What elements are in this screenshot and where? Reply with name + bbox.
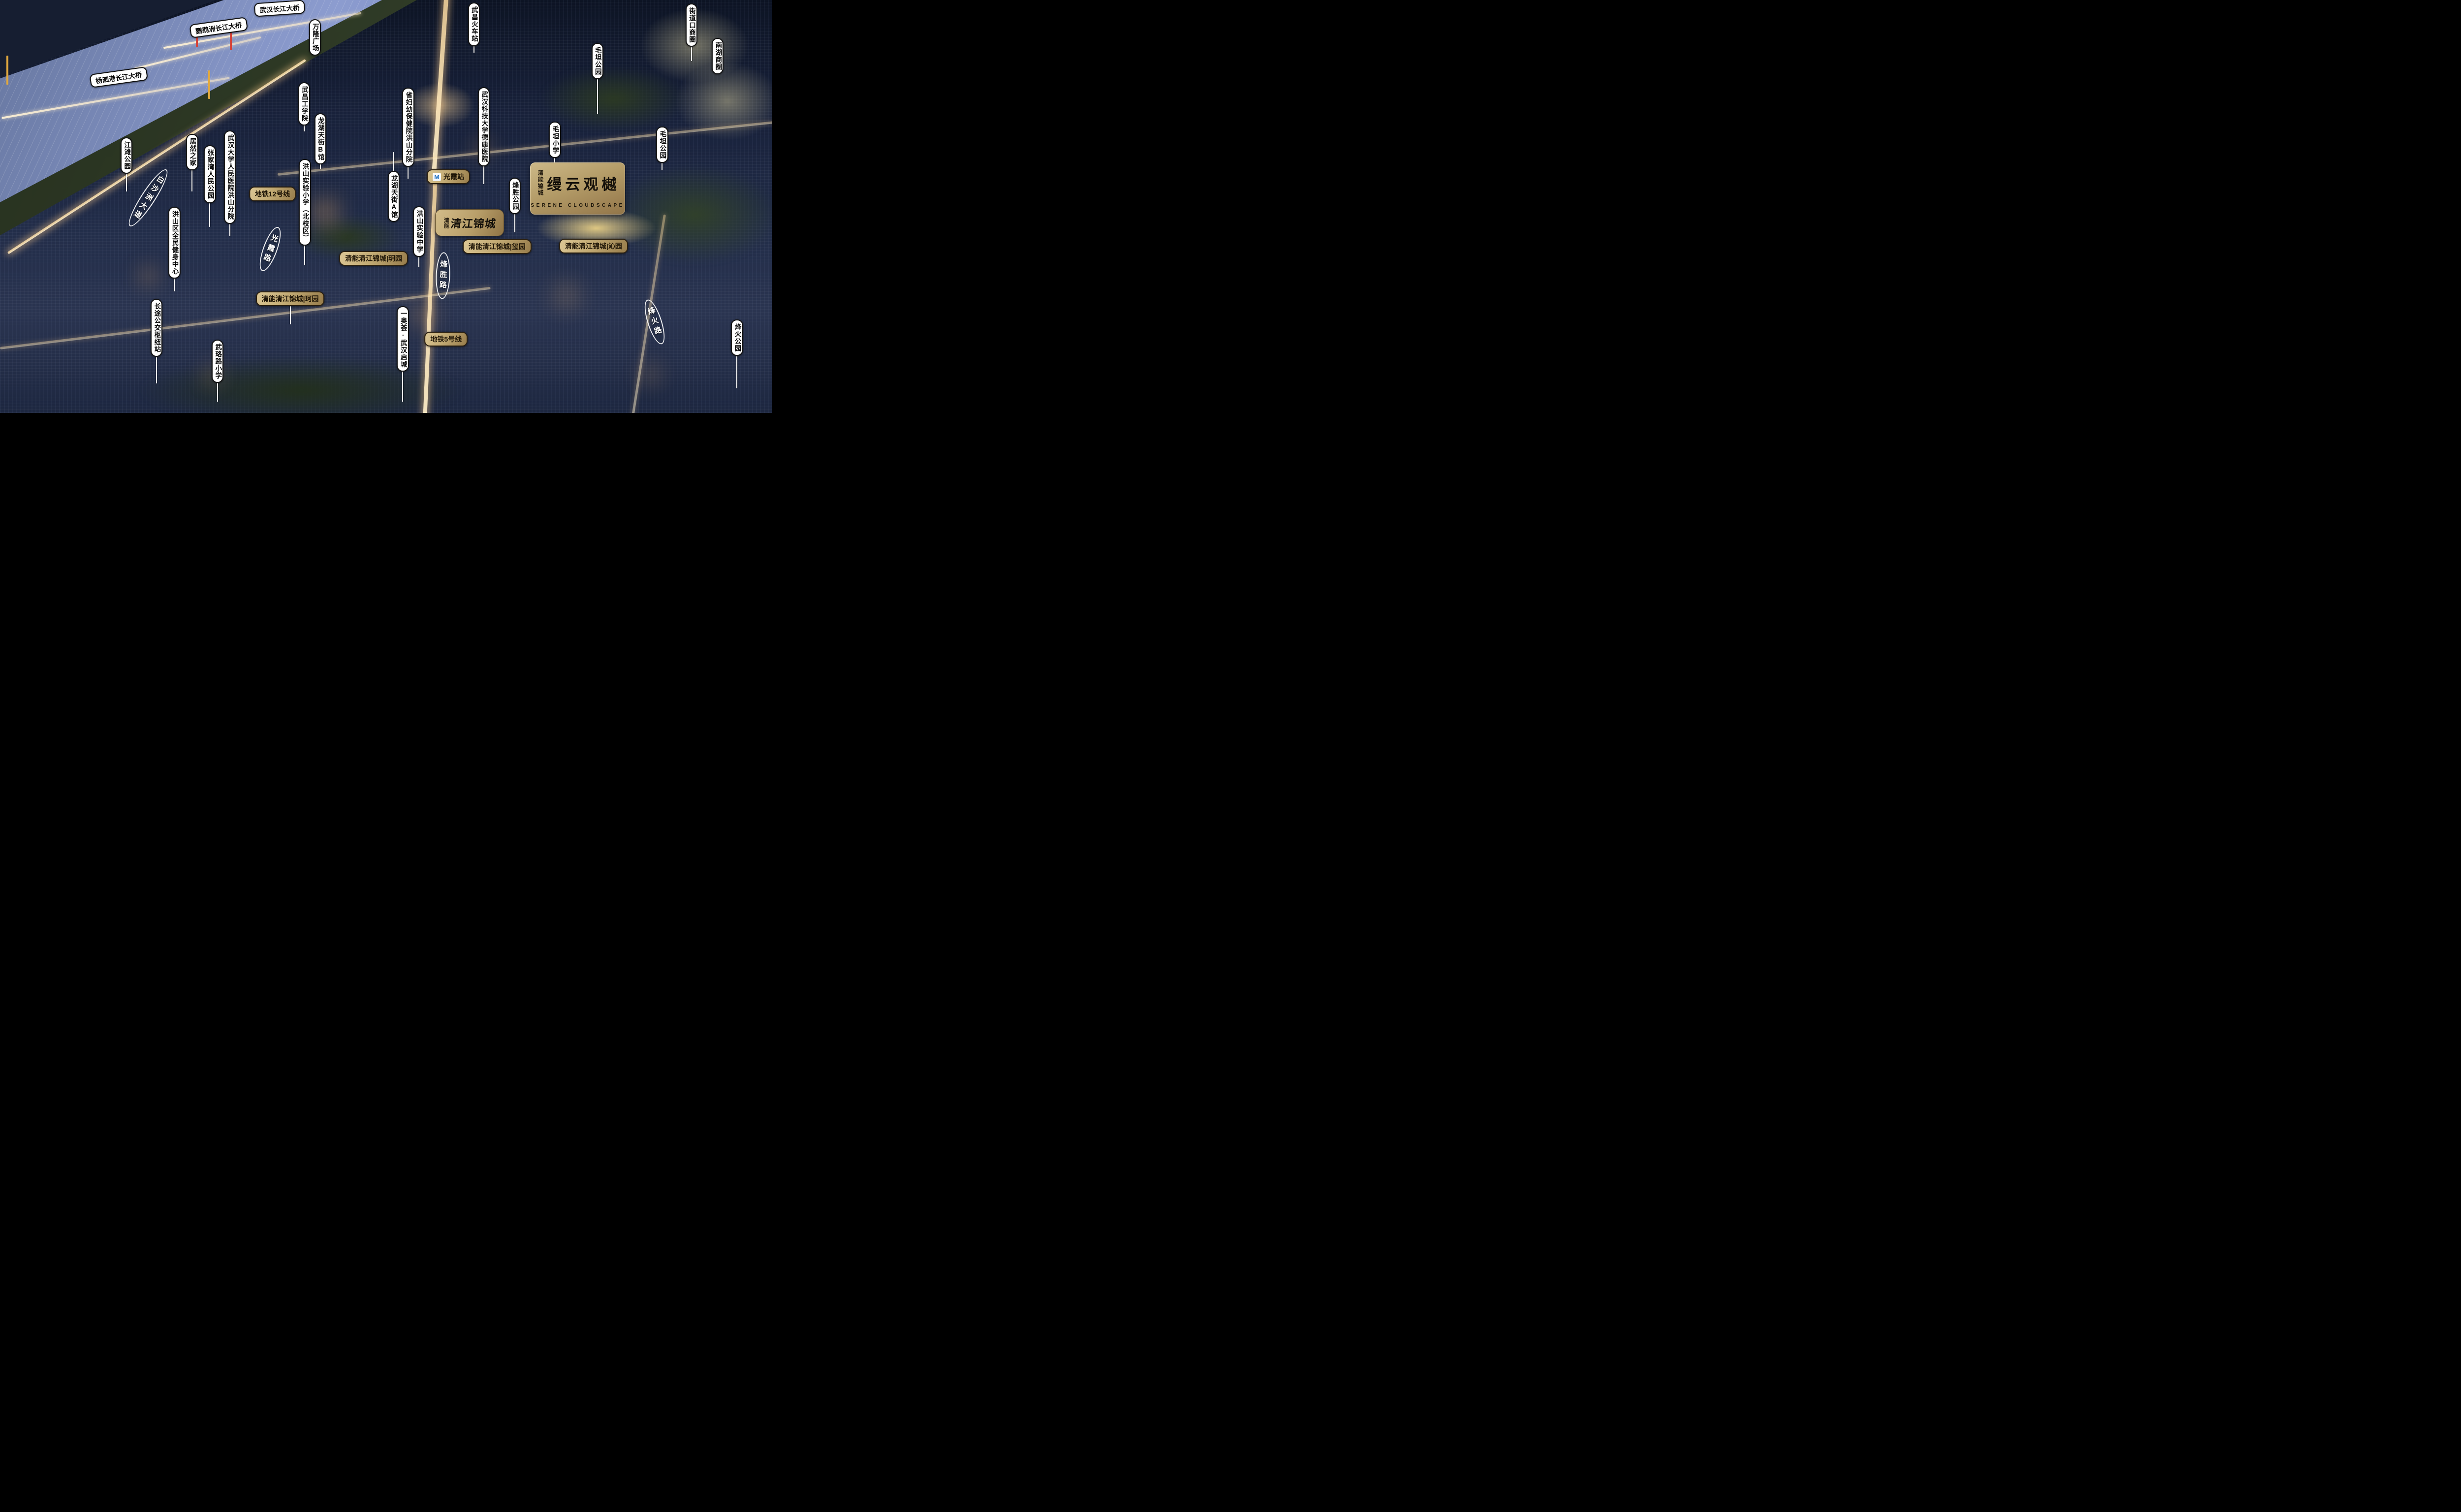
yangtze-river xyxy=(0,0,772,413)
wuluo-road-primary-school: 武珞路小学 xyxy=(212,340,223,383)
hongshan-fitness-center-leader-line xyxy=(174,278,175,292)
wuhan-university-peoples-hospital-hongshan-leader-line xyxy=(229,223,230,236)
yingwuzhou-red-pylon-2 xyxy=(230,31,232,50)
developer-seal: 清能锦城 xyxy=(537,170,543,202)
project-subtitle-en: SERENE CLOUDSCAPE xyxy=(531,203,624,208)
jiangtan-park: 江滩公园 xyxy=(121,137,132,174)
wuhan-university-peoples-hospital-hongshan: 武汉大学人民医院洪山分院 xyxy=(224,130,236,224)
jiedaokou-business-circle-leader-line xyxy=(691,46,692,61)
hongshan-experimental-middle-school: 洪山实验中学 xyxy=(413,206,425,257)
wust-dekang-hospital: 武汉科技大学德康医院 xyxy=(478,87,490,166)
qingjiang-jincheng-qin-garden: 清能清江锦城|沁园 xyxy=(559,239,628,253)
juran-home: 居然之家 xyxy=(186,134,198,170)
nanhu-business-circle: 南湖商圈 xyxy=(712,38,724,74)
city-texture xyxy=(0,0,772,413)
zhangjiawan-peoples-park-leader-line xyxy=(209,202,210,227)
main-road-north xyxy=(431,0,449,182)
wuluo-road-primary-school-leader-line xyxy=(217,382,218,402)
qingjiang-jincheng-xi-garden: 清能清江锦城|玺园 xyxy=(463,239,532,254)
yangsigang-gold-pylon-2 xyxy=(6,56,8,85)
qingjiang-jincheng-ke-garden-leader-line xyxy=(290,306,291,324)
hongshan-experimental-middle-school-leader-line xyxy=(418,255,419,267)
maotan-park-north-leader-line xyxy=(597,78,598,113)
yingwuzhou-bridge-deck xyxy=(133,36,261,70)
fengsheng-park-leader-line xyxy=(514,213,515,232)
wuchang-railway-station-leader-line xyxy=(473,45,474,53)
fenghuo-park: 烽火公园 xyxy=(731,319,743,356)
wuhan-changjiang-bridge: 武汉长江大桥 xyxy=(253,0,305,17)
brand-name-calligraphy: 清江锦城 xyxy=(450,215,497,231)
hongshan-experimental-primary-north-leader-line xyxy=(304,245,305,266)
metro-m-icon: M xyxy=(433,173,441,181)
qingjiang-jincheng-yue-garden: 清能清江锦城|玥园 xyxy=(339,251,408,266)
provincial-maternity-hospital-hongshan: 省妇幼保健院洪山分院 xyxy=(402,88,414,167)
brand-ribbon-qingjiang-jincheng: 清能 清江锦城 xyxy=(435,209,504,236)
south-road xyxy=(0,286,490,349)
wuchang-railway-station: 武昌火车站 xyxy=(468,2,480,46)
far-bank-city xyxy=(0,0,772,413)
wanlong-plaza: 万隆广场 xyxy=(309,19,321,56)
long-distance-bus-hub-leader-line xyxy=(156,356,157,383)
wuchang-institute-of-technology: 武昌工学院 xyxy=(298,82,310,126)
guangxia-road: 光霞路 xyxy=(255,224,285,273)
metro-line-12: 地铁12号线 xyxy=(249,187,296,201)
long-distance-bus-hub: 长途公交枢纽站 xyxy=(151,299,162,357)
maotan-park-east: 毛坦公园 xyxy=(656,126,668,163)
longhu-paradise-walk-a-leader-line xyxy=(393,152,394,171)
project-title: 缦云观樾 xyxy=(547,172,620,194)
city-warm-lights xyxy=(0,0,1,1)
river-reflections xyxy=(0,0,772,413)
location-map: 武汉长江大桥鹦鹉洲长江大桥杨泗港长江大桥万隆广场武昌火车站街道口商圈南湖商圈毛坦… xyxy=(0,0,772,413)
maotan-park-east-leader-line xyxy=(662,162,663,171)
east-landscape-park xyxy=(610,165,772,264)
river-shore-green xyxy=(0,0,772,413)
baishazhou-avenue-road xyxy=(7,59,306,254)
longhu-paradise-walk-b: 龙湖天街B馆 xyxy=(315,113,326,165)
jiangtan-park-leader-line xyxy=(126,173,127,192)
interchange-glow xyxy=(405,83,474,128)
nanhu-glow-ellipse xyxy=(675,62,772,140)
wust-dekang-hospital-leader-line xyxy=(483,165,484,184)
jiedaokou-business-circle: 街道口商圈 xyxy=(686,3,697,47)
aohui-wuhan-qicheng-leader-line xyxy=(402,370,403,402)
zhangjiawan-peoples-park: 张家湾人民公园 xyxy=(204,145,216,203)
maotan-park-north: 毛坦公园 xyxy=(592,43,603,79)
fenghuo-park-leader-line xyxy=(736,355,737,388)
main-road-south xyxy=(423,173,438,413)
fengsheng-road: 烽胜路 xyxy=(435,252,451,299)
project-logo-box: 清能锦城 缦云观樾 SERENE CLOUDSCAPE xyxy=(530,162,625,215)
maotan-primary-school: 毛坦小学 xyxy=(549,122,561,158)
longhu-paradise-walk-a: 龙湖天街A馆 xyxy=(388,171,400,222)
brand-prefix: 清能 xyxy=(443,218,448,228)
yingwuzhou-changjiang-bridge: 鹦鹉洲长江大桥 xyxy=(189,17,248,38)
metro-line-5: 地铁5号线 xyxy=(424,332,468,346)
east-west-road xyxy=(278,120,772,176)
juran-home-leader-line xyxy=(191,169,192,191)
provincial-maternity-hospital-hongshan-leader-line xyxy=(408,166,409,179)
qingjiang-jincheng-ke-garden: 清能清江锦城|珂园 xyxy=(256,291,325,306)
south-green-belt xyxy=(139,355,463,413)
guangxia-metro-station: M光霞站 xyxy=(427,169,470,184)
baishazhou-avenue: 白沙洲大道 xyxy=(124,166,173,230)
fengsheng-park: 烽胜公园 xyxy=(509,178,521,214)
maotan-park-green xyxy=(540,66,687,132)
aohui-wuhan-qicheng: 一奥荟·武汉启城 xyxy=(397,306,409,372)
yangsigang-gold-pylon xyxy=(208,70,210,99)
fenghuo-road: 烽火路 xyxy=(640,298,668,346)
hongshan-fitness-center: 洪山区全民健身中心 xyxy=(168,207,180,279)
hongshan-experimental-primary-north: 洪山实验小学（北校区） xyxy=(299,159,311,246)
yangsigang-changjiang-bridge: 杨泗港长江大桥 xyxy=(90,66,148,88)
guangxia-metro-station-text: 光霞站 xyxy=(443,172,464,182)
